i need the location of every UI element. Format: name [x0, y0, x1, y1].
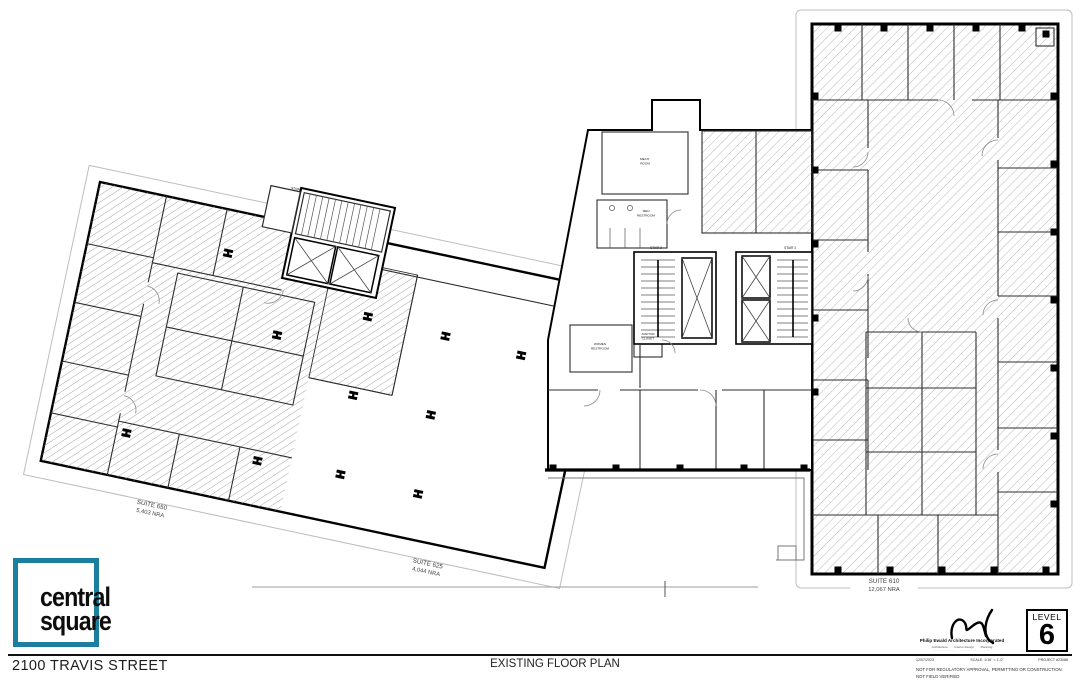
building-core: STAIR 2 STAIR 3	[548, 100, 812, 470]
right-wing-suite-610	[796, 10, 1072, 588]
sheet-date: 12/07/2023	[916, 658, 934, 662]
elevator-shaft	[742, 300, 770, 342]
elevator-shaft	[682, 258, 712, 338]
stair-3-label: STAIR 3	[784, 246, 796, 250]
mech-room-label: MECH.	[640, 157, 650, 161]
drawing-sheet: STAIR 1 SUITE 650 5,403 NRA SUITE 625 4,…	[0, 0, 1080, 687]
architect-address-line: ··· ········· ······ ····· ··· ······· ·…	[897, 649, 1025, 652]
central-square-logo: central square	[40, 586, 152, 634]
street-address: 2100 TRAVIS STREET	[12, 658, 168, 674]
men-restroom-label: MEN	[643, 209, 650, 213]
level-badge: LEVEL 6	[1026, 609, 1068, 652]
suite-610-name: SUITE 610	[869, 578, 900, 585]
level-number: 6	[1028, 622, 1066, 650]
sheet-project-number: PROJECT #23086	[1008, 658, 1068, 662]
janitor-label2: CLOSET	[642, 337, 654, 341]
title-block-rule	[8, 654, 1072, 656]
floor-plan-drawing: STAIR 1 SUITE 650 5,403 NRA SUITE 625 4,…	[0, 0, 1080, 687]
elevator-shaft	[287, 238, 336, 284]
drawing-title: EXISTING FLOOR PLAN	[440, 658, 670, 670]
men-restroom	[597, 200, 667, 248]
core-tenant-room	[702, 131, 812, 233]
core-stair-elevator-right: STAIR 3	[736, 246, 812, 344]
women-restroom-label: WOMEN	[594, 342, 606, 346]
logo-word-2: square	[40, 610, 152, 634]
disclaimer-note-1: NOT FOR REGULATORY APPROVAL, PERMITTING …	[916, 667, 1062, 672]
janitor-label: JANITOR	[641, 332, 655, 336]
elevator-shaft	[742, 256, 770, 298]
suite-610-label-group: SUITE 610 12,067 NRA	[850, 576, 918, 594]
men-restroom-label2: RESTROOM	[637, 214, 655, 218]
architect-name: Philip Ewald Architecture Incorporated	[903, 638, 1021, 643]
suite-610-area: 12,067 NRA	[868, 587, 900, 593]
left-wing-suites-650-625: STAIR 1 SUITE 650 5,403 NRA SUITE 625 4,…	[20, 144, 629, 603]
stair-2-label: STAIR 2	[650, 246, 662, 250]
women-restroom-label2: RESTROOM	[591, 347, 609, 351]
elevator-shaft	[330, 247, 379, 293]
mech-room-label2: ROOM	[640, 162, 650, 166]
disclaimer-note-2: NOT FIELD VERIFIED	[916, 674, 959, 679]
terrace-edge	[548, 478, 804, 560]
core-stair-elevator-left: STAIR 2	[634, 246, 716, 344]
